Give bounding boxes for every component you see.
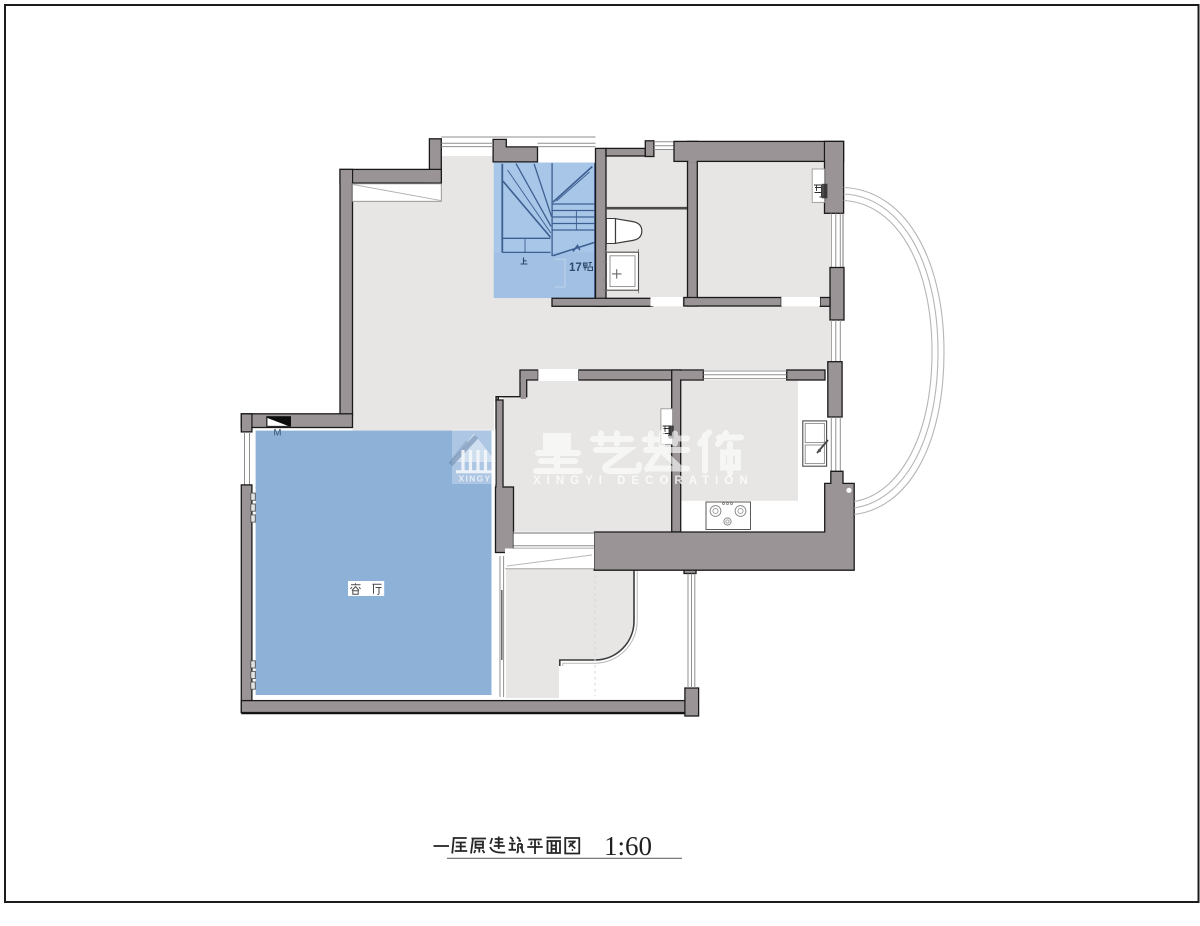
svg-text:XINGYI DECORATION: XINGYI DECORATION — [533, 475, 754, 487]
svg-text:17: 17 — [569, 262, 582, 274]
svg-text:M: M — [274, 428, 282, 439]
svg-text:XINGYI: XINGYI — [459, 474, 496, 484]
svg-text:1:60: 1:60 — [604, 831, 652, 861]
